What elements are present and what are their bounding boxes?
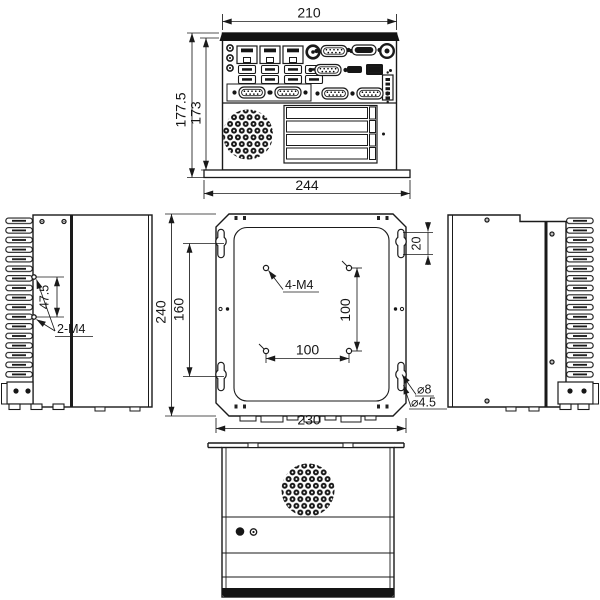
screw-icon: [485, 399, 489, 403]
foot: [31, 404, 42, 410]
keyhole-slot: [396, 362, 406, 390]
front-panel-view: 210 177.5 173 244: [173, 5, 411, 200]
dim-front-height-body: 173: [188, 101, 204, 125]
fan-vent-grille-icon: [282, 464, 335, 517]
screw-icon: [13, 388, 18, 393]
screw-icon: [550, 232, 554, 236]
screw-icon: [485, 218, 489, 222]
screw-icon: [567, 388, 572, 393]
bottom-view: [208, 443, 404, 597]
power-button-icon: [236, 527, 245, 536]
screw-icon: [25, 388, 30, 393]
label-side-thread: 2-M4: [57, 322, 86, 336]
dim-side-hole-pitch: 47.5: [38, 285, 52, 309]
dim-keyhole-slot-width: ⌀4.5: [411, 396, 436, 410]
foot: [53, 404, 64, 410]
left-side-view: 47.5 2-M4: [2, 215, 153, 411]
m4-hole: [32, 315, 36, 319]
foot: [560, 404, 571, 410]
foot: [506, 407, 516, 411]
technical-drawing-canvas: 210 177.5 173 244 47.5 2-M4: [0, 0, 600, 600]
dim-front-height-overall: 177.5: [173, 92, 189, 127]
heatsink-fins-icon: [5, 217, 33, 381]
terminal-block-icon: [383, 71, 394, 103]
dimension-drawing: 210 177.5 173 244 47.5 2-M4: [0, 0, 600, 600]
fan-vent-grille-icon: [223, 110, 273, 160]
led-indicator: [389, 69, 392, 72]
m4-hole: [32, 275, 36, 279]
hdmi-port-icon: [347, 66, 362, 73]
chassis-top-lip: [220, 33, 400, 41]
dim-keyhole-slot-length: 20: [410, 237, 424, 251]
right-side-view: [448, 215, 599, 411]
dim-plate-width: 230: [297, 412, 321, 428]
foot: [95, 407, 105, 411]
foot: [9, 404, 20, 410]
dim-keyhole-pitch: 160: [171, 298, 187, 322]
keyhole-slot: [396, 229, 406, 257]
mounting-plate-view: 240 160 4-M4 100 100 20 ⌀8 ⌀4.5 230: [153, 214, 448, 433]
bottom-trim-band: [222, 588, 394, 597]
dim-front-width-top: 210: [297, 5, 321, 21]
screw-icon: [62, 220, 66, 224]
foot: [130, 407, 140, 411]
heatsink-fins-icon: [566, 217, 594, 381]
displayport-icon: [366, 64, 383, 75]
dim-vesa-horizontal: 100: [296, 342, 320, 358]
screw-icon: [581, 388, 586, 393]
dim-front-width-bottom: 244: [295, 177, 319, 193]
label-plate-thread: 4-M4: [285, 278, 314, 292]
dim-plate-height: 240: [153, 300, 169, 324]
dim-keyhole-diameter: ⌀8: [417, 383, 432, 397]
screw-icon: [40, 220, 44, 224]
dim-vesa-vertical: 100: [337, 298, 353, 322]
screw-icon: [550, 360, 554, 364]
foot: [578, 404, 589, 410]
foot: [529, 407, 539, 411]
